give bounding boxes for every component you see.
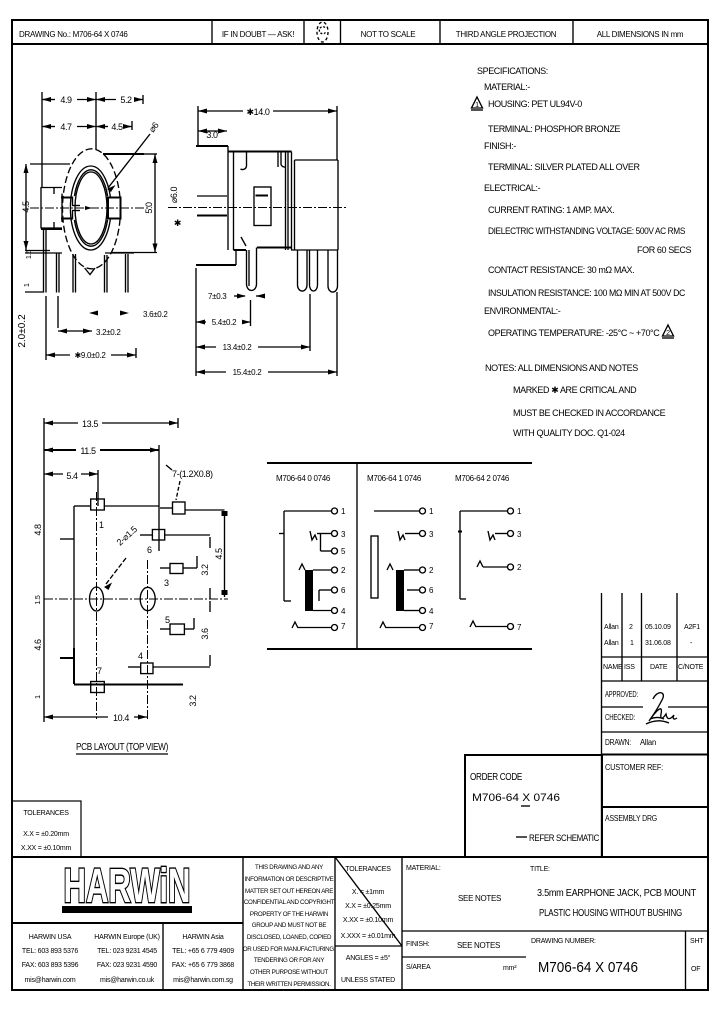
svg-text:MATERIAL:-: MATERIAL:- — [484, 82, 530, 92]
svg-text:1.5: 1.5 — [35, 595, 42, 604]
svg-text:HARWIN USA: HARWIN USA — [29, 934, 72, 941]
svg-text:4.5: 4.5 — [111, 122, 123, 132]
svg-text:CONFIDENTIAL AND COPYRIGHT: CONFIDENTIAL AND COPYRIGHT — [244, 899, 335, 906]
svg-text:MARKED ✱ ARE CRITICAL AND: MARKED ✱ ARE CRITICAL AND — [513, 385, 637, 395]
svg-text:NOTES: ALL DIMENSIONS AND NOTE: NOTES: ALL DIMENSIONS AND NOTES — [485, 363, 638, 373]
svg-text:mis@harwin.com.sg: mis@harwin.com.sg — [173, 977, 233, 984]
svg-text:NAME: NAME — [603, 664, 623, 671]
svg-text:DRAWN:: DRAWN: — [605, 738, 631, 747]
svg-text:C/NOTE: C/NOTE — [678, 664, 704, 671]
svg-text:mis@harwin.com: mis@harwin.com — [25, 977, 76, 984]
svg-text:Allan: Allan — [640, 738, 656, 747]
svg-text:M706-64 0 0746: M706-64 0 0746 — [276, 474, 331, 483]
svg-text:3.5mm EARPHONE JACK, PCB MOUNT: 3.5mm EARPHONE JACK, PCB MOUNT — [537, 887, 697, 899]
svg-text:REFER SCHEMATIC: REFER SCHEMATIC — [529, 833, 600, 843]
svg-text:X.XX = ±0.10mm: X.XX = ±0.10mm — [21, 845, 72, 852]
svg-text:ORDER CODE: ORDER CODE — [470, 772, 523, 783]
svg-text:X.X = ±0.25mm: X.X = ±0.25mm — [345, 903, 391, 910]
svg-text:HARWiN: HARWiN — [64, 859, 191, 912]
svg-text:TOLERANCES: TOLERANCES — [345, 866, 391, 873]
svg-text:4.7: 4.7 — [60, 122, 72, 132]
svg-text:4.5: 4.5 — [214, 548, 224, 560]
svg-text:3.6±0.2: 3.6±0.2 — [143, 310, 168, 319]
svg-text:13.4±0.2: 13.4±0.2 — [223, 343, 253, 352]
svg-text:3: 3 — [164, 578, 169, 588]
svg-text:CURRENT RATING: 1 AMP. MAX.: CURRENT RATING: 1 AMP. MAX. — [488, 205, 614, 215]
svg-text:2: 2 — [666, 330, 670, 337]
svg-text:OR USED FOR MANUFACTURING,: OR USED FOR MANUFACTURING, — [243, 946, 336, 953]
svg-text:6: 6 — [147, 545, 152, 555]
svg-text:ELECTRICAL:-: ELECTRICAL:- — [484, 183, 541, 193]
svg-text:TENDERING OR FOR ANY: TENDERING OR FOR ANY — [254, 957, 324, 964]
svg-text:mm²: mm² — [503, 965, 517, 972]
svg-text:TERMINAL: PHOSPHOR BRONZE: TERMINAL: PHOSPHOR BRONZE — [488, 124, 620, 134]
svg-text:11.5: 11.5 — [80, 446, 96, 456]
svg-text:5.4±0.2: 5.4±0.2 — [212, 318, 237, 327]
svg-text:2: 2 — [629, 624, 633, 631]
svg-text:4.5: 4.5 — [21, 201, 31, 213]
svg-text:TEL: 603 893 5376: TEL: 603 893 5376 — [22, 948, 78, 955]
svg-text:2.0±0.2: 2.0±0.2 — [17, 314, 28, 348]
svg-text:SHT: SHT — [690, 938, 704, 945]
svg-text:SEE NOTES: SEE NOTES — [457, 941, 500, 950]
svg-text:CHECKED:: CHECKED: — [605, 713, 635, 722]
svg-text:FOR 60 SECS: FOR 60 SECS — [637, 245, 692, 255]
svg-text:DRAWING No.: M706-64 X 0746: DRAWING No.: M706-64 X 0746 — [19, 30, 128, 39]
svg-text:UNLESS STATED: UNLESS STATED — [341, 977, 395, 984]
svg-text:MATTER SET OUT HEREON ARE: MATTER SET OUT HEREON ARE — [245, 888, 333, 895]
svg-text:GROUP AND MUST NOT BE: GROUP AND MUST NOT BE — [252, 922, 327, 929]
svg-text:SPECIFICATIONS:: SPECIFICATIONS: — [477, 66, 548, 76]
svg-text:ENVIRONMENTAL:-: ENVIRONMENTAL:- — [484, 306, 561, 316]
svg-text:mis@harwin.co.uk: mis@harwin.co.uk — [100, 977, 155, 984]
svg-text:3.2: 3.2 — [188, 695, 198, 707]
svg-text:DISCLOSED, LOANED, COPIED: DISCLOSED, LOANED, COPIED — [247, 934, 332, 941]
svg-text:WITH QUALITY DOC. Q1-024: WITH QUALITY DOC. Q1-024 — [513, 428, 625, 438]
svg-text:M706-64 1 0746: M706-64 1 0746 — [367, 474, 422, 483]
svg-text:FAX: 023 9231 4590: FAX: 023 9231 4590 — [97, 962, 158, 969]
svg-text:M706-64 X 0746: M706-64 X 0746 — [472, 792, 560, 804]
svg-text:✱9.0±0.2: ✱9.0±0.2 — [75, 351, 107, 360]
svg-text:SEE NOTES: SEE NOTES — [458, 894, 501, 903]
svg-text:CONTACT RESISTANCE: 30 mΩ MAX.: CONTACT RESISTANCE: 30 mΩ MAX. — [488, 265, 634, 275]
svg-text:10.4: 10.4 — [113, 713, 129, 723]
svg-text:1: 1 — [475, 102, 479, 109]
svg-text:FINISH:: FINISH: — [406, 941, 430, 948]
svg-text:FAX: 603 893 5396: FAX: 603 893 5396 — [22, 962, 79, 969]
svg-text:INSULATION RESISTANCE: 100 MΩ: INSULATION RESISTANCE: 100 MΩ MIN AT 500… — [488, 288, 686, 298]
svg-text:X.XXX = ±0.01mm: X.XXX = ±0.01mm — [341, 933, 396, 940]
svg-text:X. = ±1mm: X. = ±1mm — [352, 889, 385, 896]
svg-text:HARWIN Europe (UK): HARWIN Europe (UK) — [94, 934, 160, 941]
svg-text:FINISH:-: FINISH:- — [484, 141, 516, 151]
svg-text:5: 5 — [165, 615, 170, 625]
svg-text:ANGLES = ±5°: ANGLES = ±5° — [346, 954, 391, 962]
svg-text:MATERIAL:: MATERIAL: — [406, 865, 441, 872]
svg-text:⌀6.0: ⌀6.0 — [169, 186, 179, 203]
svg-text:HOUSING: PET UL94V-0: HOUSING: PET UL94V-0 — [488, 99, 582, 109]
svg-text:M706-64 2 0746: M706-64 2 0746 — [455, 474, 510, 483]
svg-text:THIRD ANGLE PROJECTION: THIRD ANGLE PROJECTION — [456, 30, 557, 39]
svg-text:S/AREA: S/AREA — [406, 964, 431, 971]
svg-text:4: 4 — [138, 651, 143, 661]
svg-text:M706-64 X 0746: M706-64 X 0746 — [538, 959, 638, 976]
svg-text:A2F1: A2F1 — [684, 624, 700, 631]
svg-text:X.X = ±0.20mm: X.X = ±0.20mm — [23, 831, 69, 838]
svg-text:INFORMATION OR DESCRIPTIVE: INFORMATION OR DESCRIPTIVE — [244, 876, 333, 883]
svg-text:4.8: 4.8 — [33, 524, 43, 536]
svg-text:7±0.3: 7±0.3 — [208, 292, 227, 301]
svg-text:ASSEMBLY DRG: ASSEMBLY DRG — [605, 814, 657, 823]
svg-text:5.2: 5.2 — [120, 95, 132, 105]
svg-text:TEL: 023 9231 4545: TEL: 023 9231 4545 — [97, 948, 157, 955]
svg-text:TEL: +65 6 779 4909: TEL: +65 6 779 4909 — [172, 948, 234, 955]
svg-text:MUST BE CHECKED IN ACCORDANCE: MUST BE CHECKED IN ACCORDANCE — [513, 408, 666, 418]
svg-text:PROPERTY OF THE HARWIN: PROPERTY OF THE HARWIN — [250, 911, 328, 918]
svg-text:CUSTOMER REF:: CUSTOMER REF: — [605, 763, 663, 772]
svg-text:TERMINAL: SILVER PLATED ALL OV: TERMINAL: SILVER PLATED ALL OVER — [488, 162, 640, 172]
svg-text:THIS DRAWING AND ANY: THIS DRAWING AND ANY — [255, 864, 323, 871]
svg-text:13.5: 13.5 — [82, 419, 98, 429]
svg-text:✱14.0: ✱14.0 — [246, 107, 269, 117]
svg-text:DRAWING NUMBER:: DRAWING NUMBER: — [531, 938, 596, 945]
svg-text:3.6: 3.6 — [200, 628, 210, 640]
svg-text:ALL DIMENSIONS IN mm: ALL DIMENSIONS IN mm — [597, 30, 684, 39]
svg-text:3.2±0.2: 3.2±0.2 — [96, 328, 121, 337]
svg-text:OTHER PURPOSE WITHOUT: OTHER PURPOSE WITHOUT — [250, 969, 328, 976]
svg-text:1: 1 — [99, 520, 104, 530]
svg-text:4.6: 4.6 — [33, 639, 43, 651]
svg-text:TOLERANCES: TOLERANCES — [23, 810, 69, 817]
svg-text:DIELECTRIC WITHSTANDING VOLTAG: DIELECTRIC WITHSTANDING VOLTAGE: 500V AC… — [488, 226, 685, 236]
svg-text:Allan: Allan — [604, 624, 619, 631]
svg-text:HARWIN Asia: HARWIN Asia — [182, 934, 224, 941]
svg-text:3.2: 3.2 — [200, 564, 210, 576]
svg-text:31.06.08: 31.06.08 — [645, 640, 671, 647]
svg-text:5.0: 5.0 — [144, 202, 154, 214]
svg-text:✱: ✱ — [174, 218, 181, 228]
svg-text:1: 1 — [630, 640, 634, 647]
svg-text:7-(1.2X0.8): 7-(1.2X0.8) — [172, 469, 213, 479]
svg-text:THEIR WRITTEN PERMISSION.: THEIR WRITTEN PERMISSION. — [247, 981, 331, 988]
svg-text:FAX: +65 6 779 3868: FAX: +65 6 779 3868 — [172, 962, 234, 969]
svg-text:15.4±0.2: 15.4±0.2 — [233, 368, 263, 377]
svg-text:OPERATING TEMPERATURE: -25°C ~: OPERATING TEMPERATURE: -25°C ~ +70°C — [488, 328, 660, 338]
svg-text:05.10.09: 05.10.09 — [645, 624, 671, 631]
svg-text:7: 7 — [97, 666, 102, 676]
svg-text:ISS: ISS — [624, 664, 635, 671]
svg-text:1: 1 — [35, 695, 42, 699]
svg-text:3.0: 3.0 — [206, 130, 218, 140]
svg-text:5.4: 5.4 — [66, 471, 78, 481]
svg-text:OF: OF — [691, 966, 700, 973]
svg-text:PCB LAYOUT (TOP VIEW): PCB LAYOUT (TOP VIEW) — [76, 742, 168, 753]
svg-text:1.5: 1.5 — [26, 250, 33, 259]
svg-text:TITLE:: TITLE: — [530, 866, 550, 873]
svg-text:PLASTIC HOUSING WITHOUT BUSHIN: PLASTIC HOUSING WITHOUT BUSHING — [539, 907, 682, 919]
svg-text:DATE: DATE — [650, 664, 668, 671]
svg-text:X.XX = ±0.10mm: X.XX = ±0.10mm — [343, 917, 394, 924]
svg-text:APPROVED:: APPROVED: — [605, 690, 638, 699]
svg-text:IF IN DOUBT — ASK!: IF IN DOUBT — ASK! — [222, 30, 294, 39]
svg-text:Allan: Allan — [604, 640, 619, 647]
svg-text:1: 1 — [24, 283, 31, 287]
svg-text:NOT TO SCALE: NOT TO SCALE — [361, 30, 416, 39]
svg-text:4.9: 4.9 — [60, 95, 72, 105]
